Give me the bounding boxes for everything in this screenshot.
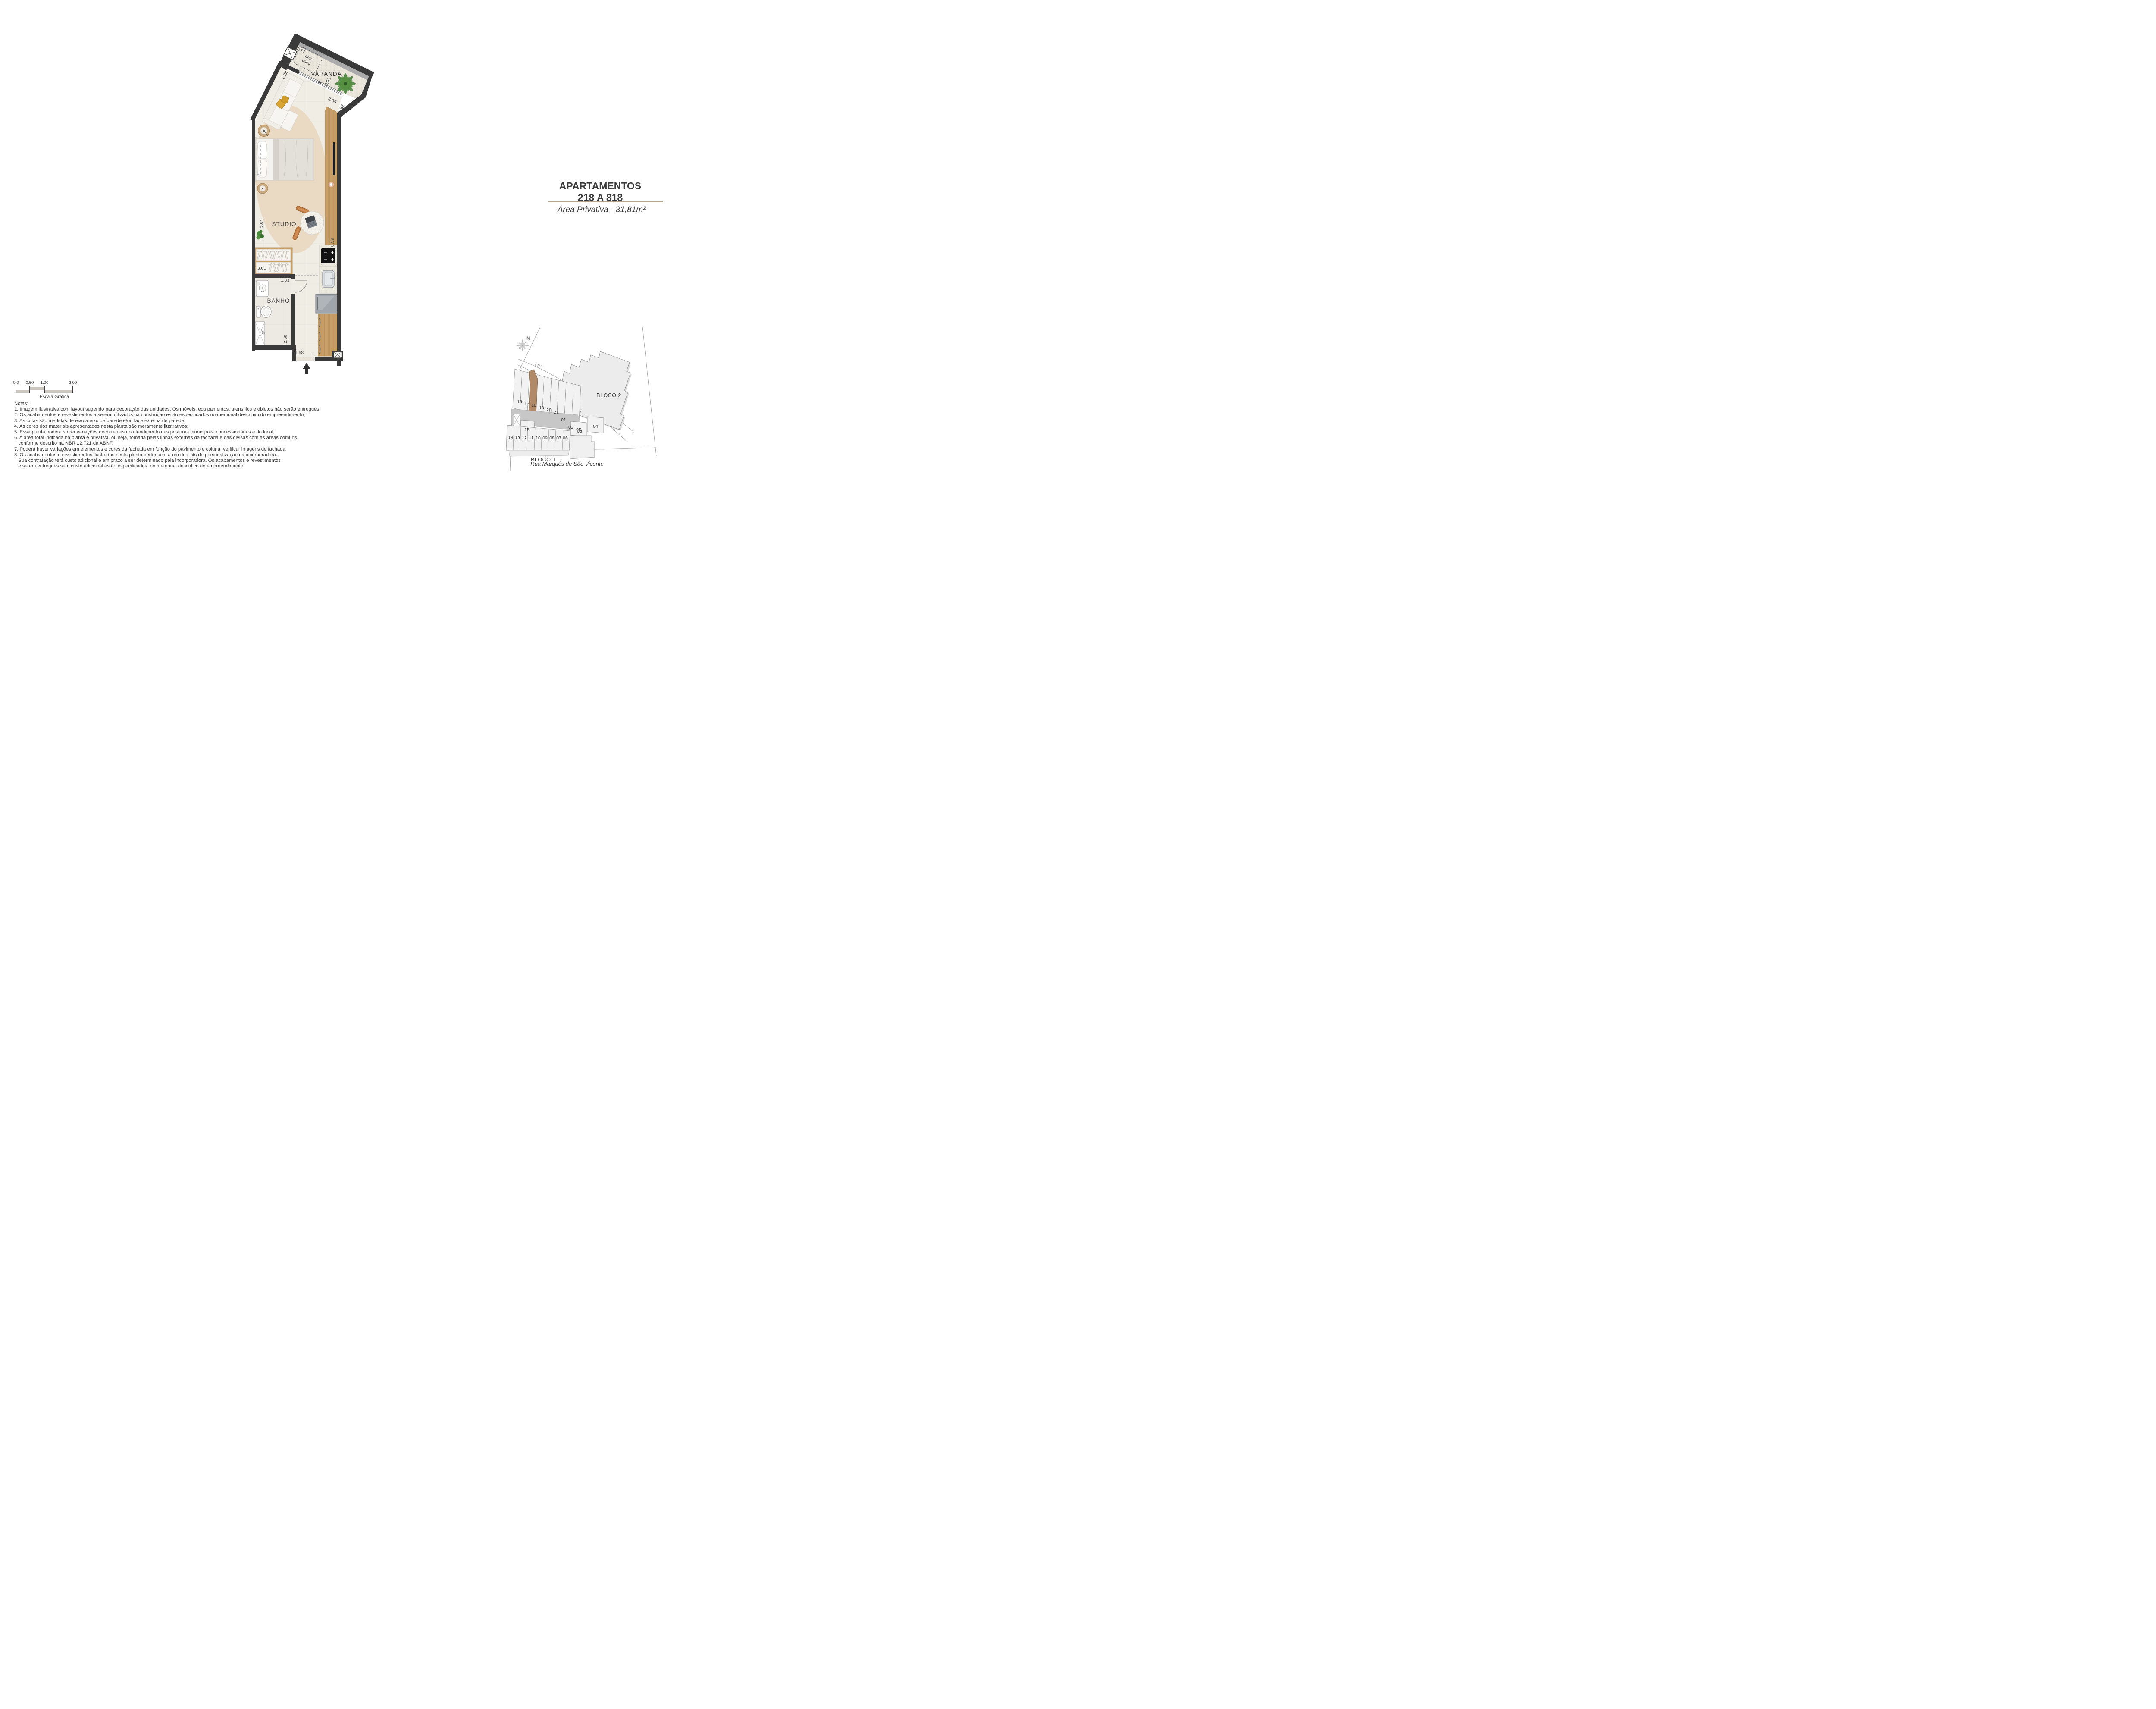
bathroom-sink-icon [256, 280, 268, 297]
title-divider [548, 201, 663, 202]
stairs-icon [513, 414, 520, 426]
unit-19: 19 [539, 405, 544, 411]
scale-segment [16, 390, 29, 393]
unit-07: 07 [556, 436, 561, 441]
entrance-arrow-icon [303, 363, 310, 374]
entrance [296, 354, 315, 374]
unit-04: 04 [593, 424, 598, 429]
note-line: conforme descrito na NBR 12.721 da ABNT; [14, 441, 320, 446]
kitchen-cabinet [318, 314, 337, 356]
side-table [258, 125, 270, 137]
dim-3-01: 3.01 [257, 266, 266, 271]
unit-15: 15 [524, 427, 530, 433]
unit-10: 10 [536, 436, 541, 441]
toilet-icon [256, 306, 271, 318]
side-table [257, 183, 268, 194]
scale-tick-label: 0.50 [26, 380, 34, 385]
studio-label: STUDIO [272, 221, 296, 227]
bloco1-bottom-units [506, 425, 571, 456]
unit-18: 18 [531, 403, 536, 408]
bed [254, 137, 314, 182]
street-name: Rua Marquês de São Vicente [496, 461, 638, 467]
unit-20: 20 [546, 408, 552, 413]
sink-counter [319, 267, 337, 293]
scale-segment [30, 387, 44, 390]
graphic-scale: 0.0 0.50 1.00 2.00 Escala Gráfica [13, 380, 86, 402]
notes-heading: Notas: [14, 401, 320, 407]
note-line: Sua contratação terá custo adicional e e… [14, 458, 320, 464]
floor-plan: proj. cond. VARA [250, 34, 374, 374]
unit-09: 09 [542, 436, 548, 441]
note-line: 2. Os acabamentos e revestimentos a sere… [14, 412, 320, 418]
scale-tick-label: 0.0 [13, 380, 19, 385]
shaft-icon [334, 352, 342, 358]
notes-block: Notas: 1. Imagem ilustrativa com layout … [14, 401, 320, 469]
note-line: 7. Poderá haver variações em elementos e… [14, 447, 320, 452]
fridge-icon [316, 294, 337, 313]
scale-caption: Escala Gráfica [28, 394, 80, 399]
banho-label: BANHO [267, 298, 290, 304]
note-line: 6. A área total indicada na planta é pri… [14, 435, 320, 441]
note-line: 1. Imagem ilustrativa com layout sugerid… [14, 407, 320, 412]
title-block: APARTAMENTOS 218 A 818 [539, 180, 661, 204]
varanda-label: VARANDA [311, 71, 342, 77]
note-line: 8. Os acabamentos e revestimentos ilustr… [14, 452, 320, 458]
cooktop-counter [319, 245, 337, 267]
unit-14: 14 [508, 436, 513, 441]
tv-icon [333, 142, 335, 175]
wardrobe [254, 248, 292, 275]
shower-icon [255, 322, 265, 346]
unit-06: 06 [563, 436, 568, 441]
site-plan: FNA N BLOCO 2 [506, 327, 656, 471]
scale-tick-label: 2.00 [69, 380, 77, 385]
scale-tick [72, 386, 73, 393]
unit-01: 01 [561, 417, 566, 423]
highlighted-unit-18 [529, 370, 538, 415]
note-line: e serem entregues sem custo adicional es… [14, 464, 320, 469]
unit-16: 16 [517, 399, 522, 405]
unit-08: 08 [549, 436, 555, 441]
unit-02: 02 [568, 425, 573, 430]
unit-11: 11 [529, 436, 534, 441]
unit-21: 21 [554, 410, 559, 415]
scale-segment [45, 390, 72, 393]
dim-5-64: 5.64 [259, 219, 264, 228]
unit-12: 12 [522, 436, 527, 441]
dim-1-33: 1.33 [281, 278, 290, 283]
private-area-text: Área Privativa - 31,81m² [539, 205, 664, 215]
scale-tick-label: 1.00 [41, 380, 49, 385]
north-label: N [526, 336, 530, 342]
note-line: 5. Essa planta poderá sofrer variações d… [14, 430, 320, 435]
bloco2-label: BLOCO 2 [596, 392, 621, 398]
side-wing-building [570, 436, 595, 459]
dim-1-68: 1.68 [295, 350, 304, 355]
tv-console [325, 107, 337, 246]
note-line: 4. As cores dos materiais apresentados n… [14, 424, 320, 430]
dim-8-59: 8.59 [330, 238, 335, 247]
title-line1: APARTAMENTOS [539, 180, 661, 192]
note-line: 3. As cotas são medidas de eixo a eixo d… [14, 418, 320, 424]
unit-13: 13 [515, 436, 520, 441]
floorplan-page: proj. cond. VARA [0, 0, 666, 471]
cooktop-icon [321, 248, 335, 263]
dim-2-60: 2.60 [283, 335, 288, 344]
unit-17: 17 [524, 401, 530, 406]
unit-05: 05 [576, 427, 581, 433]
